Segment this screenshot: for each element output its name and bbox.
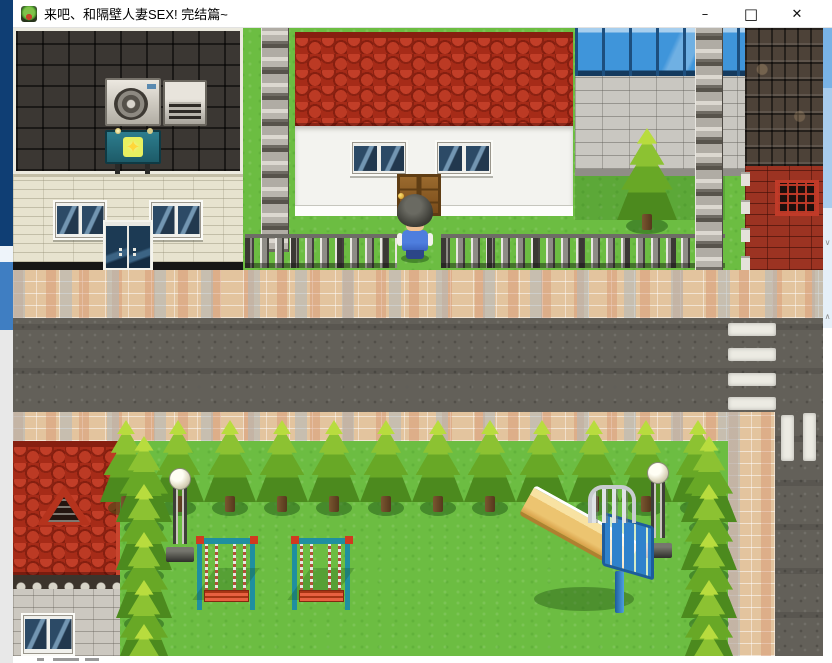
pine-tree bbox=[256, 420, 308, 516]
tree-foliage bbox=[464, 420, 516, 502]
rooftop-sign bbox=[105, 130, 161, 164]
house-window bbox=[21, 613, 75, 656]
street-lamp bbox=[165, 468, 195, 562]
house-roof bbox=[295, 32, 573, 126]
office-double-door bbox=[103, 220, 153, 270]
swing-chains bbox=[297, 544, 345, 594]
scrollbar-chevron-up-icon: ∧ bbox=[823, 312, 832, 321]
grated-window bbox=[775, 180, 819, 216]
character-hair bbox=[397, 194, 433, 227]
slide-platform-railing bbox=[588, 485, 636, 523]
house-window bbox=[435, 140, 493, 176]
crosswalk-stripe-vertical bbox=[803, 413, 816, 461]
stone-pillar-column bbox=[695, 28, 723, 270]
background-window-left-sliver bbox=[0, 0, 13, 663]
background-window-right-sliver: ∨ ∧ bbox=[823, 28, 832, 663]
game-app-icon bbox=[21, 6, 37, 22]
screenshot-root: ∨ ∧ 来吧、和隔壁人妻SEX! 完结篇~ – □ ✕ bbox=[0, 0, 832, 663]
pine-tree bbox=[360, 420, 412, 516]
text-smudge bbox=[53, 658, 79, 661]
front-yard-pine-tree bbox=[617, 128, 677, 234]
swing-set bbox=[292, 538, 350, 610]
scrollbar-chevron-down-icon: ∨ bbox=[823, 238, 832, 247]
pine-tree bbox=[116, 624, 172, 656]
text-smudge bbox=[37, 658, 44, 661]
text-smudge bbox=[85, 658, 99, 661]
tree-foliage bbox=[360, 420, 412, 502]
brick-building-roof bbox=[745, 28, 823, 166]
office-building bbox=[13, 28, 245, 270]
swing-chains bbox=[202, 544, 250, 594]
tree-foliage bbox=[412, 420, 464, 502]
tree-foliage bbox=[681, 624, 737, 656]
picket-fence bbox=[245, 234, 397, 268]
cornice-frieze bbox=[13, 575, 120, 589]
pine-tree bbox=[681, 624, 737, 656]
game-window-titlebar: 来吧、和隔壁人妻SEX! 完结篇~ – □ ✕ bbox=[13, 0, 832, 28]
crosswalk-stripe bbox=[728, 323, 776, 336]
tree-foliage bbox=[116, 624, 172, 656]
pine-tree bbox=[204, 420, 256, 516]
slide-support-pole bbox=[615, 571, 624, 613]
crosswalk-stripe-vertical bbox=[781, 415, 794, 461]
game-viewport[interactable] bbox=[13, 28, 823, 656]
lamp-base bbox=[166, 547, 194, 562]
office-window bbox=[149, 200, 203, 240]
player-character bbox=[397, 192, 433, 264]
lamp-globe bbox=[169, 468, 191, 490]
stone-pillar-column bbox=[261, 28, 289, 252]
character-body bbox=[402, 230, 428, 251]
pine-tree bbox=[464, 420, 516, 516]
sidewalk-top bbox=[13, 270, 823, 318]
window-controls: – □ ✕ bbox=[682, 0, 820, 28]
window-title: 来吧、和隔壁人妻SEX! 完结篇~ bbox=[44, 4, 228, 23]
lamp-globe bbox=[647, 462, 669, 484]
road-horizontal bbox=[13, 318, 823, 412]
tree-foliage bbox=[256, 420, 308, 502]
crosswalk-stripe bbox=[728, 373, 776, 386]
office-window bbox=[53, 200, 107, 240]
pine-tree bbox=[308, 420, 360, 516]
house-window bbox=[350, 140, 408, 176]
slide bbox=[518, 485, 653, 618]
picket-fence bbox=[441, 234, 725, 268]
tree-foliage bbox=[308, 420, 360, 502]
tree-foliage bbox=[617, 128, 677, 220]
maximize-button[interactable]: □ bbox=[728, 0, 774, 28]
crosswalk-stripe bbox=[728, 348, 776, 361]
pine-tree bbox=[412, 420, 464, 516]
close-button[interactable]: ✕ bbox=[774, 0, 820, 28]
crosswalk-stripe bbox=[728, 397, 776, 410]
quoin-stones bbox=[741, 166, 750, 270]
character-legs bbox=[406, 250, 424, 259]
ac-unit bbox=[105, 78, 161, 126]
background-window-bottom-sliver bbox=[13, 656, 832, 663]
swing-set bbox=[197, 538, 255, 610]
vent-unit bbox=[163, 80, 207, 126]
brick-building bbox=[745, 28, 823, 270]
minimize-button[interactable]: – bbox=[682, 0, 728, 28]
lamp-post bbox=[173, 488, 187, 544]
tree-foliage bbox=[204, 420, 256, 502]
